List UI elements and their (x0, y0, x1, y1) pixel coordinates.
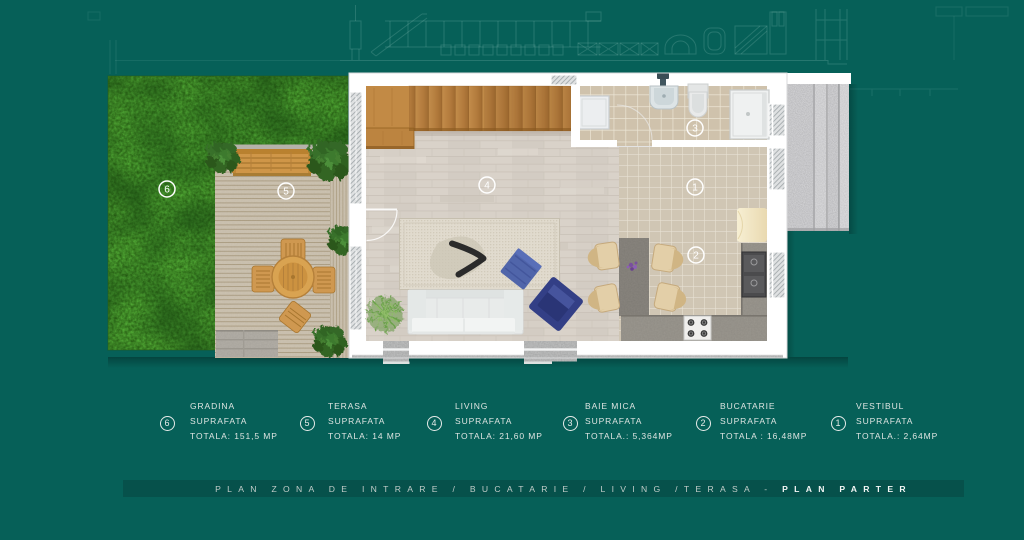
svg-text:6: 6 (164, 185, 170, 196)
svg-text:5: 5 (283, 187, 289, 198)
svg-text:4: 4 (484, 181, 490, 192)
svg-text:2: 2 (693, 251, 699, 262)
svg-text:1: 1 (692, 183, 698, 194)
svg-text:3: 3 (692, 124, 698, 135)
